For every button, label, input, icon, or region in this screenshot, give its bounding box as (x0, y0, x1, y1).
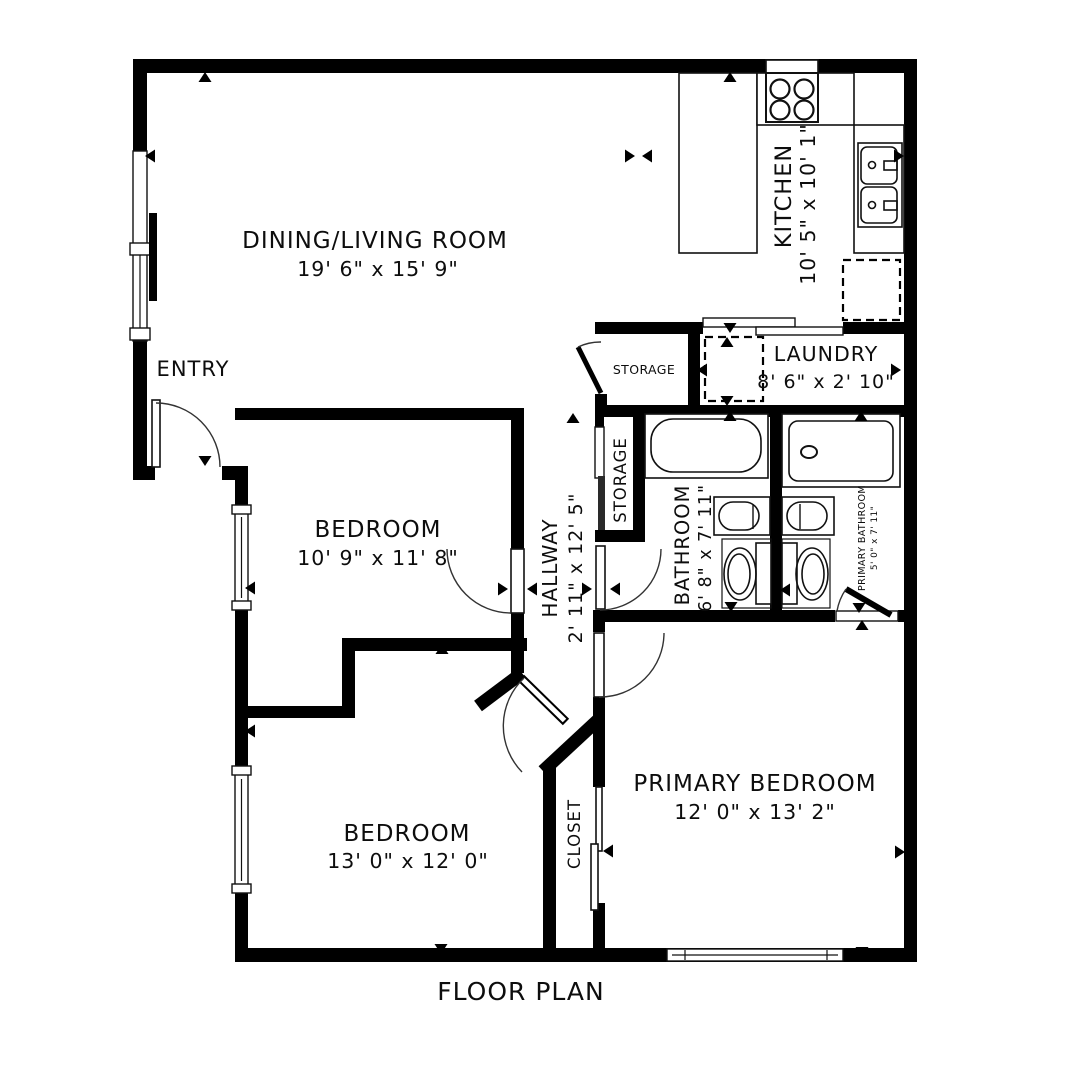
room-dims-laundry: 8' 6" x 2' 10" (757, 371, 895, 393)
room-label-laundry: LAUNDRY (774, 342, 879, 366)
primary-bedroom-door (594, 633, 664, 697)
room-label-primary-bedroom: PRIMARY BEDROOM (633, 771, 876, 797)
bedroom-lower-window (232, 766, 251, 893)
room-label-kitchen: KITCHEN (771, 144, 797, 249)
room-label-bedroom-lower: BEDROOM (343, 821, 470, 847)
kitchen-passage-threshold (703, 318, 843, 335)
room-label-entry: ENTRY (157, 357, 230, 381)
room-label-bedroom-middle: BEDROOM (314, 517, 441, 543)
floor-plan: DINING/LIVING ROOM 19' 6" x 15' 9" ENTRY… (0, 0, 1082, 1080)
primary-vanity-icon (782, 497, 834, 535)
storage-upper-door (578, 342, 601, 393)
room-label-storage-hall: STORAGE (611, 437, 630, 523)
diagonal-wall-stub (478, 673, 522, 706)
primary-toilet-icon (782, 539, 830, 608)
room-dims-bedroom-middle: 10' 9" x 11' 8" (297, 546, 459, 570)
patio-slider-window (130, 151, 157, 341)
room-dims-primary-bedroom: 12' 0" x 13' 2" (674, 800, 836, 824)
bathroom-vanity-icon (714, 497, 770, 535)
primary-bedroom-window (667, 949, 843, 961)
room-dims-hallway: 2' 11" x 12' 5" (565, 493, 587, 644)
room-label-storage-upper: STORAGE (613, 362, 675, 377)
room-dims-kitchen: 10' 5" x 10' 1" (796, 123, 820, 285)
room-dims-primary-bathroom: 5' 0" x 7' 11" (870, 506, 880, 570)
room-dims-dining-living: 19' 6" x 15' 9" (297, 257, 459, 281)
bathroom-door (596, 546, 661, 610)
storage-hall-sliding-door (595, 427, 605, 530)
bathroom-toilet-icon (722, 539, 771, 608)
washer-dashed-box (705, 337, 763, 401)
room-label-primary-bathroom: PRIMARY BATHROOM (857, 485, 868, 591)
plan-title: FLOOR PLAN (437, 977, 604, 1006)
bedroom-middle-window (232, 505, 251, 610)
closet-sliding-door (591, 787, 602, 910)
refrigerator-dashed-box (843, 260, 900, 320)
room-dims-bathroom: 6' 8" x 7' 11" (696, 484, 716, 612)
room-label-closet: CLOSET (565, 799, 584, 869)
closet-angled-wall (543, 719, 599, 771)
room-dims-bedroom-lower: 13' 0" x 12' 0" (327, 849, 489, 873)
room-label-hallway: HALLWAY (538, 518, 562, 617)
room-label-dining-living: DINING/LIVING ROOM (242, 228, 508, 254)
stove-icon (766, 60, 818, 122)
room-label-bathroom: BATHROOM (671, 485, 694, 606)
shower-icon (782, 414, 900, 487)
bathtub-icon (645, 414, 768, 478)
